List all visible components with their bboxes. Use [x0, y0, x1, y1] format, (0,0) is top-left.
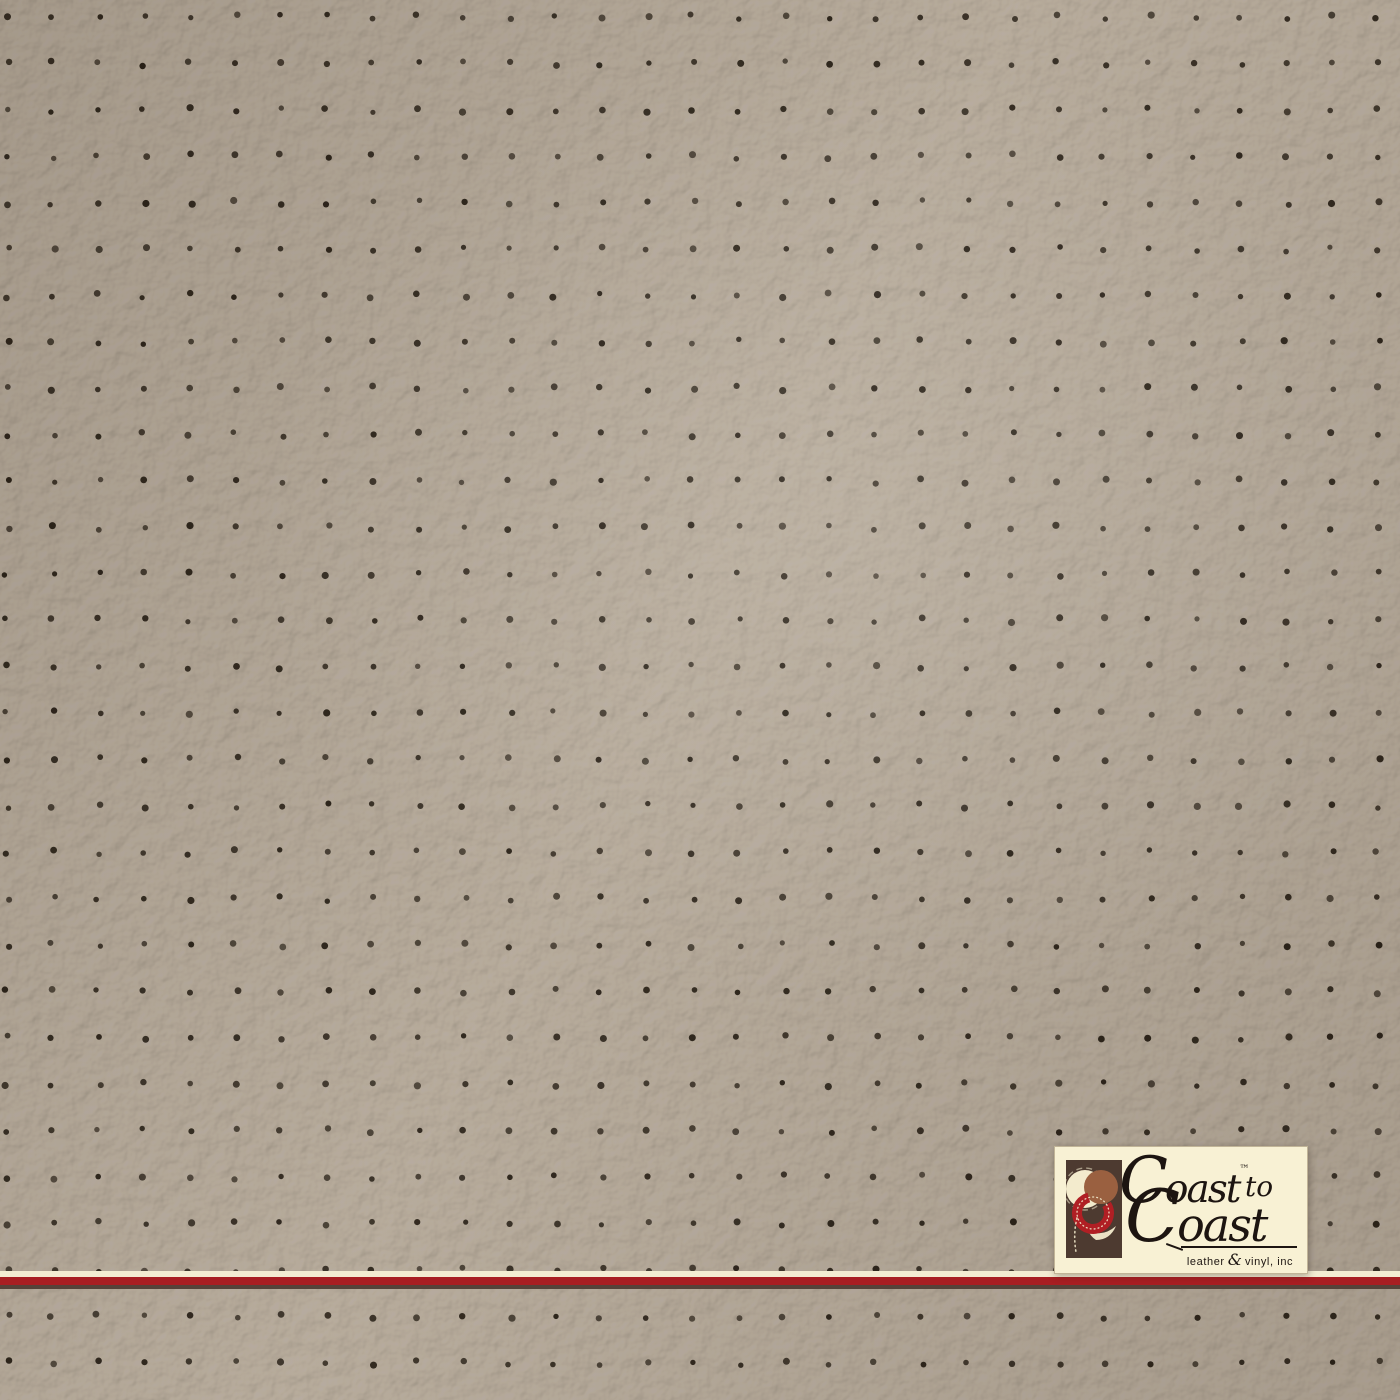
coast-to-coast-logo-icon [1066, 1160, 1122, 1258]
stripe-dark-line [0, 1285, 1400, 1289]
brand-tagline: leather&vinyl, inc [1181, 1250, 1299, 1269]
tagline-right: vinyl, inc [1245, 1256, 1293, 1268]
brand-name-line2: Coast [1125, 1180, 1266, 1252]
brand-rest-2: oast [1177, 1198, 1266, 1252]
brand-logo-card: Coast™ to Coast leather&vinyl, inc [1054, 1146, 1308, 1274]
tagline-left: leather [1187, 1256, 1225, 1268]
leather-swatch-photo: Coast™ to Coast leather&vinyl, inc [0, 0, 1400, 1400]
logo-underline-rule [1181, 1246, 1297, 1248]
tagline-ampersand: & [1228, 1250, 1242, 1269]
stripe-red-line [0, 1277, 1400, 1285]
